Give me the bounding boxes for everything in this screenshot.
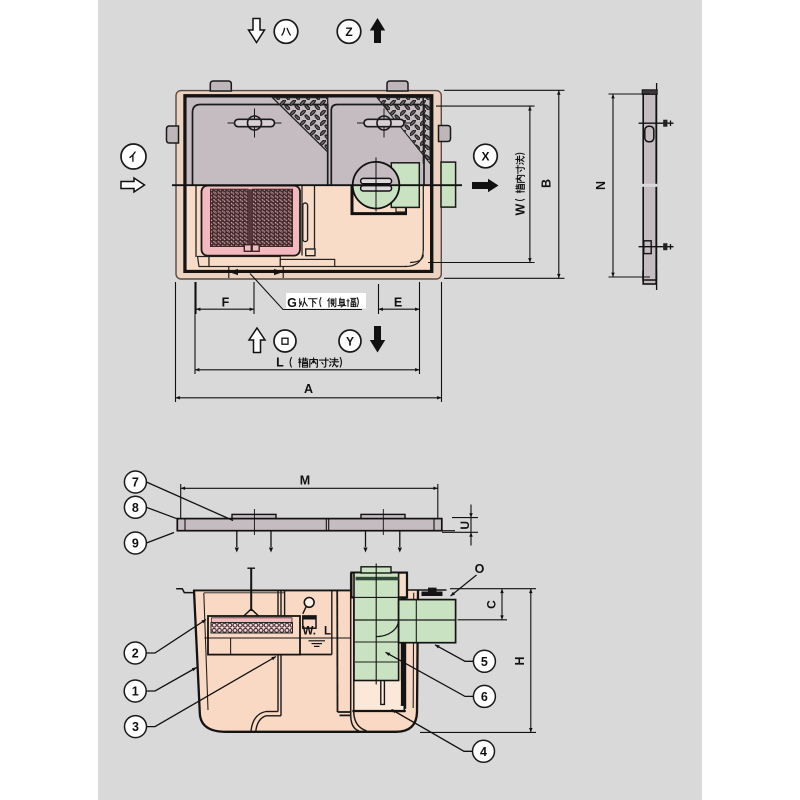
svg-text:7: 7 xyxy=(132,476,139,490)
svg-text:W: W xyxy=(514,204,528,216)
svg-text:B: B xyxy=(540,179,554,188)
svg-text:O: O xyxy=(475,562,485,576)
svg-text:3: 3 xyxy=(132,720,139,734)
svg-text:H: H xyxy=(513,656,527,665)
svg-text:U: U xyxy=(458,521,472,530)
svg-text:M: M xyxy=(300,474,310,488)
svg-text:G: G xyxy=(287,296,297,310)
svg-text:2: 2 xyxy=(132,647,139,661)
svg-text:L: L xyxy=(276,356,284,370)
svg-text:A: A xyxy=(304,382,313,396)
svg-text:N: N xyxy=(594,181,608,190)
svg-text:L: L xyxy=(324,626,331,638)
svg-text:X: X xyxy=(481,149,489,163)
svg-text:9: 9 xyxy=(132,537,139,551)
svg-text:8: 8 xyxy=(132,501,139,515)
svg-text:W.: W. xyxy=(303,626,316,638)
svg-text:5: 5 xyxy=(481,655,488,669)
svg-text:C: C xyxy=(485,600,499,609)
svg-text:F: F xyxy=(222,296,230,310)
svg-text:1: 1 xyxy=(132,685,139,699)
svg-text:Y: Y xyxy=(346,334,354,348)
svg-text:E: E xyxy=(394,296,402,310)
svg-text:4: 4 xyxy=(480,745,487,759)
svg-text:6: 6 xyxy=(481,690,488,704)
svg-text:Z: Z xyxy=(345,25,352,39)
